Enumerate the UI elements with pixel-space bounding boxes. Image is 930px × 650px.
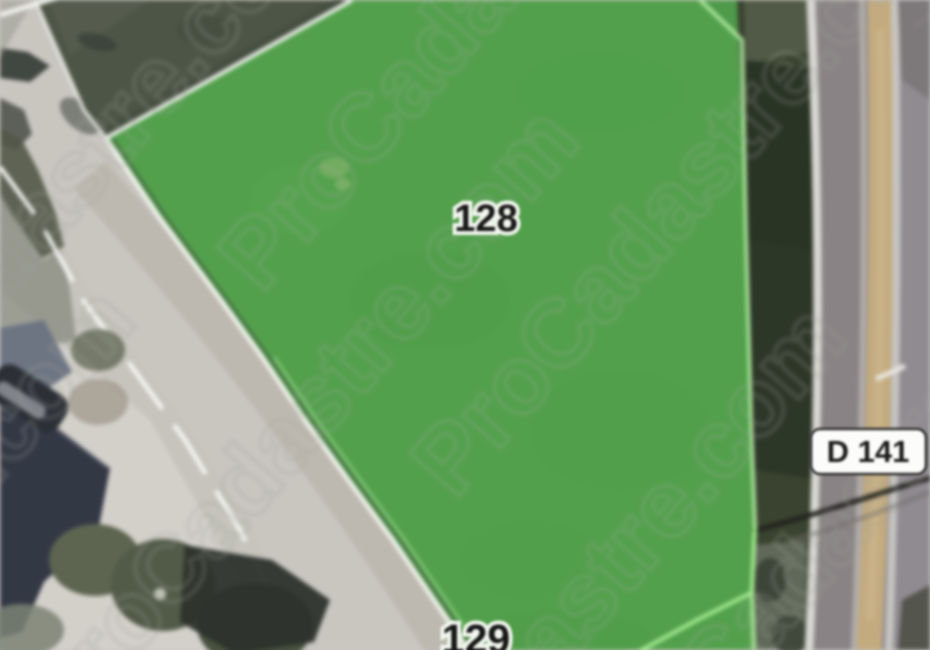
svg-text:128: 128 <box>454 198 517 240</box>
svg-text:129: 129 <box>442 616 510 650</box>
svg-text:D 141: D 141 <box>827 434 910 469</box>
